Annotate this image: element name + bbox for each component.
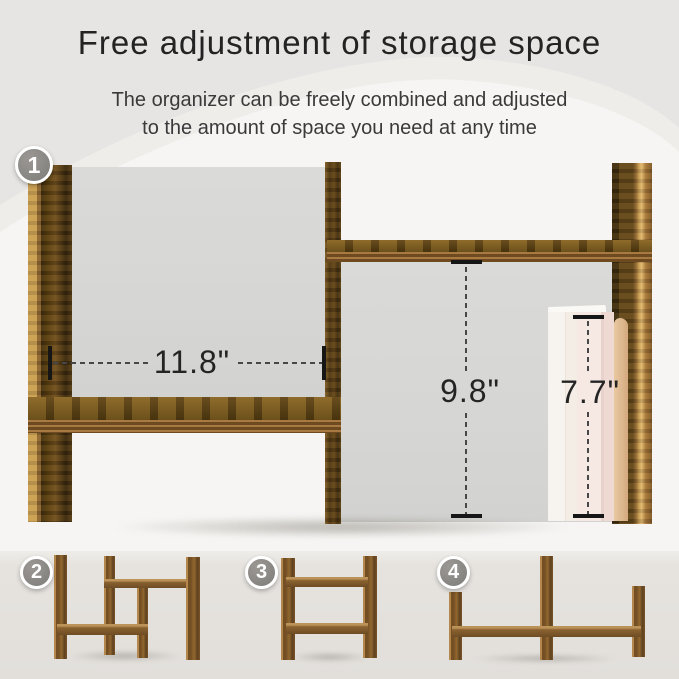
- product-infographic: Free adjustment of storage space The org…: [0, 0, 679, 679]
- variant-4-middle-panel: [540, 556, 553, 660]
- step-badge-4: 4: [437, 556, 470, 589]
- variant-4-right-panel: [632, 586, 645, 657]
- variant-4-shelf: [452, 626, 641, 637]
- variant-4-figure: 4: [0, 0, 679, 679]
